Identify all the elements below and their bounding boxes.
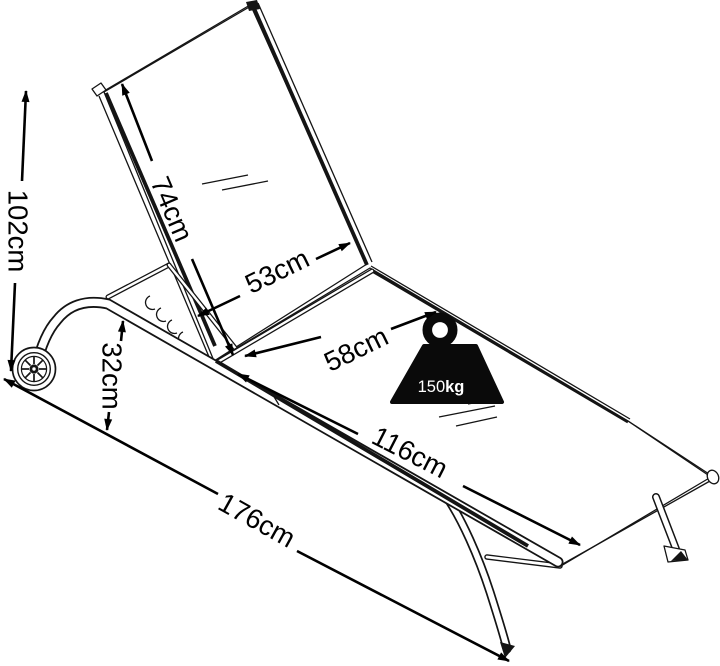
near-foot-cap	[500, 642, 515, 658]
backrest-post-cap	[92, 83, 106, 96]
diagram-canvas: 150kg 102cm 74cm 53cm 58cm	[0, 0, 720, 666]
total-length-label: 176cm	[213, 486, 300, 553]
lounger-dimension-diagram: 150kg 102cm 74cm 53cm 58cm	[0, 0, 720, 666]
wheel-icon	[13, 348, 56, 391]
frame-height-label: 32cm	[97, 342, 128, 409]
dimension-total-height: 102cm	[3, 91, 34, 371]
total-height-label: 102cm	[3, 190, 34, 273]
dimension-frame-height: 32cm	[97, 321, 128, 430]
weight-capacity-label: 150kg	[418, 378, 465, 396]
